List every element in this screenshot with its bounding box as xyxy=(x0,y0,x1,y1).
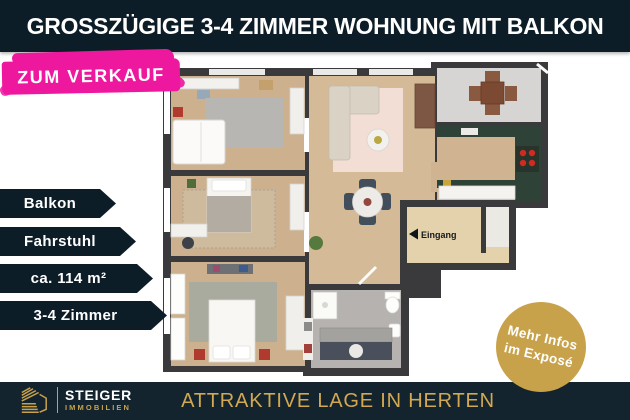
feature-banner-area: ca. 114 m² xyxy=(0,264,153,293)
sale-badge-label: ZUM VERKAUF xyxy=(2,58,181,95)
floorplan-svg: Eingang xyxy=(163,62,548,378)
brand-subtitle: IMMOBILIEN xyxy=(65,404,132,412)
feature-banner-label: ca. 114 m² xyxy=(31,270,107,287)
feature-banner-rooms: 3-4 Zimmer xyxy=(0,301,167,330)
brand-name: STEIGER xyxy=(65,388,132,402)
footer-tagline: ATTRAKTIVE LAGE IN HERTEN xyxy=(181,382,495,420)
feature-banner-label: Fahrstuhl xyxy=(24,233,96,250)
feature-banner-label: Balkon xyxy=(24,195,76,212)
info-badge: Mehr Infos im Exposé xyxy=(496,302,586,392)
feature-banner-balkon: Balkon xyxy=(0,189,116,218)
entry-hall: Eingang xyxy=(409,229,457,241)
feature-banner-fahrstuhl: Fahrstuhl xyxy=(0,227,136,256)
sale-badge: ZUM VERKAUF xyxy=(0,48,195,106)
real-estate-flyer: GROSSZÜGIGE 3-4 ZIMMER WOHNUNG MIT BALKO… xyxy=(0,0,630,420)
entrance-label: Eingang xyxy=(421,230,457,240)
page-title: GROSSZÜGIGE 3-4 ZIMMER WOHNUNG MIT BALKO… xyxy=(27,13,604,40)
brand-logo: STEIGER IMMOBILIEN xyxy=(18,385,132,415)
title-bar: GROSSZÜGIGE 3-4 ZIMMER WOHNUNG MIT BALKO… xyxy=(0,0,630,52)
feature-banner-label: 3-4 Zimmer xyxy=(33,307,117,324)
logo-divider xyxy=(57,387,58,413)
building-icon xyxy=(18,385,50,415)
